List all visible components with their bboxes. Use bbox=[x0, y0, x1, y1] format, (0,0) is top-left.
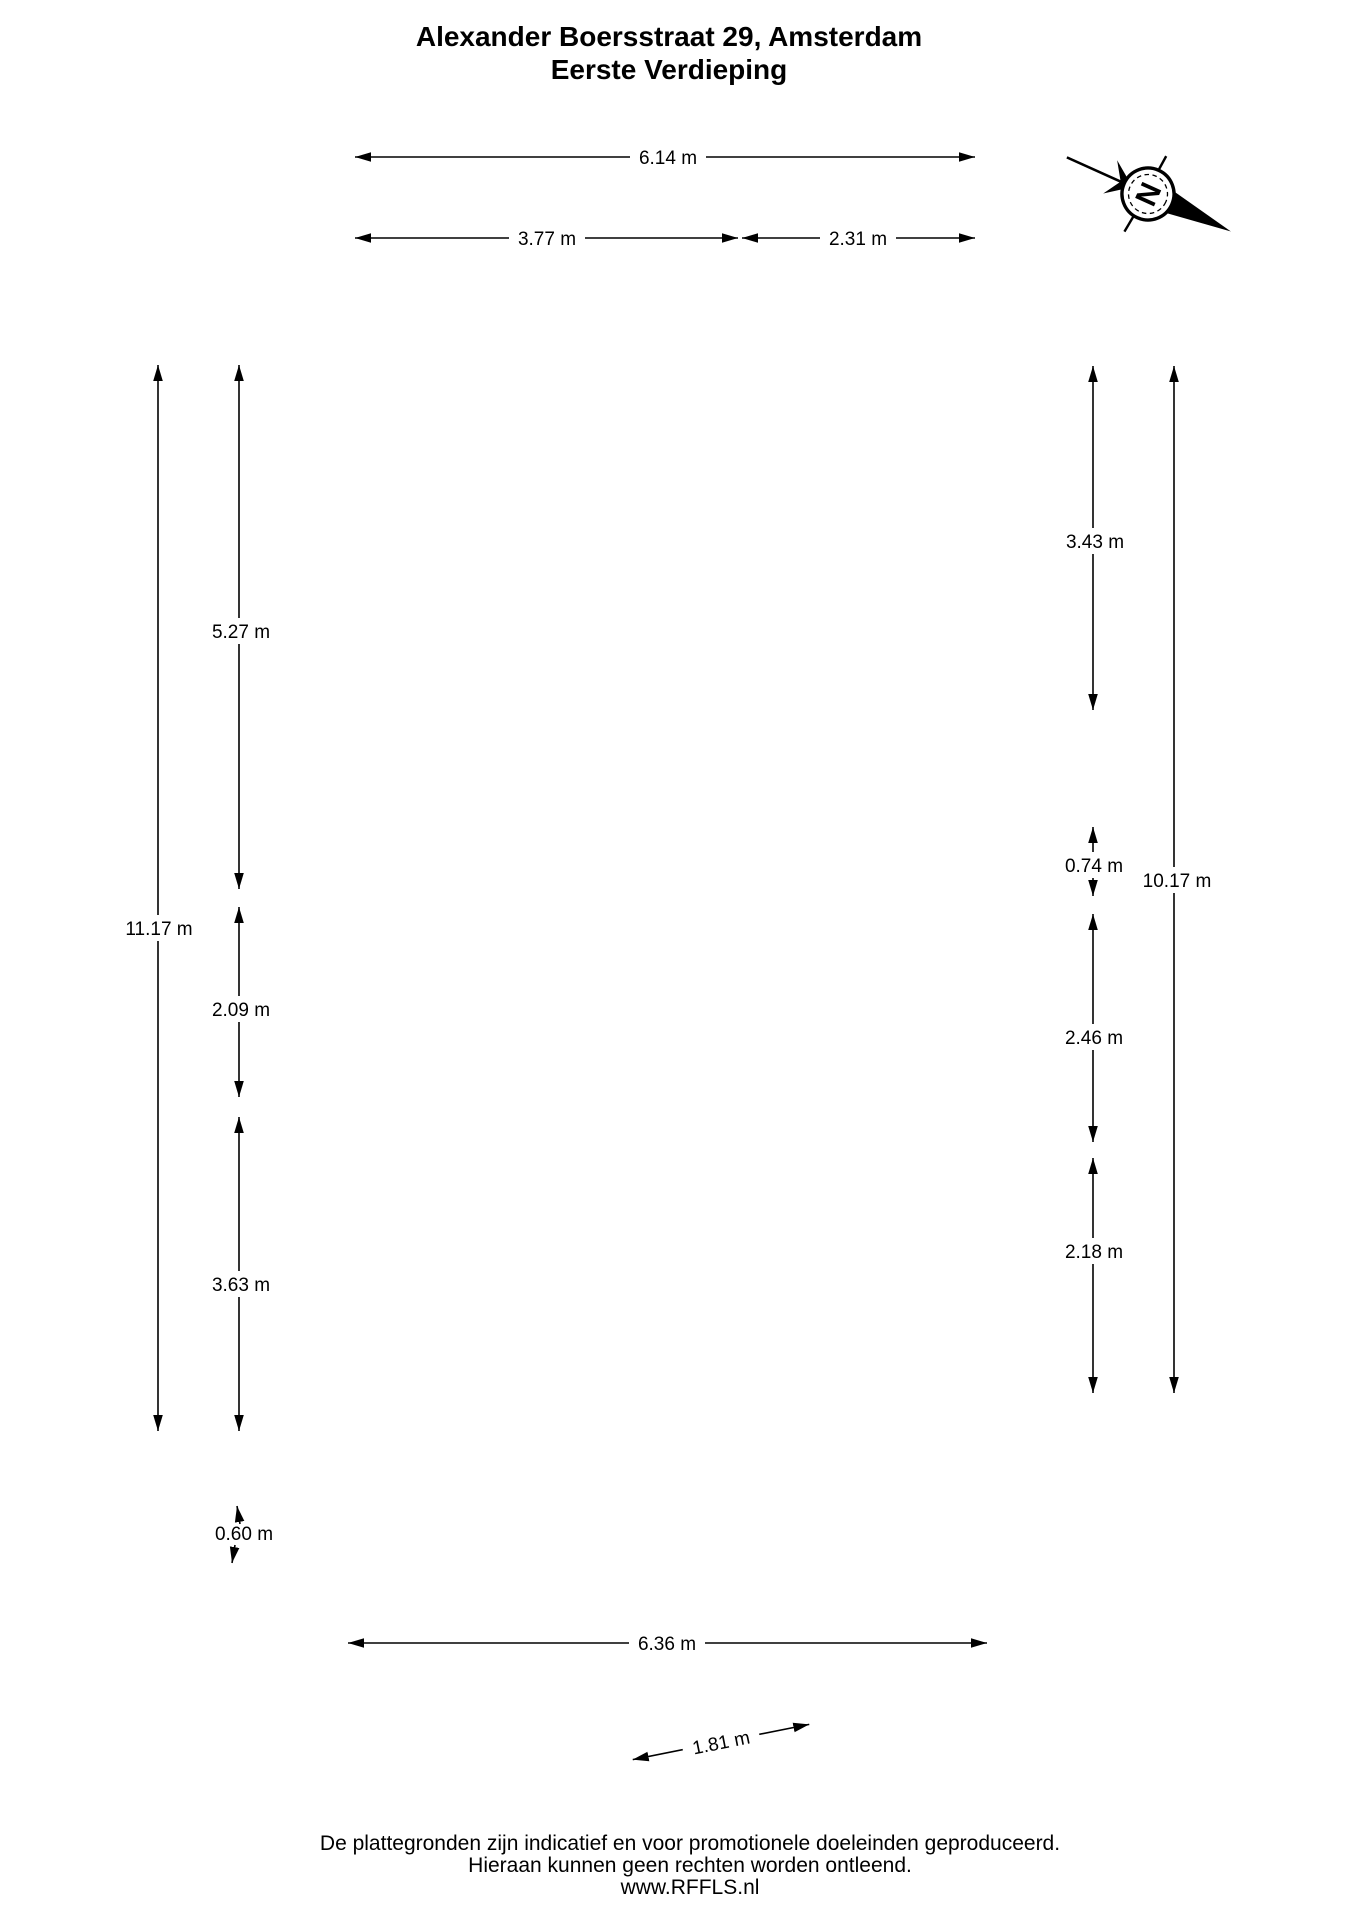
svg-text:5.27 m: 5.27 m bbox=[212, 622, 270, 643]
svg-text:2.18 m: 2.18 m bbox=[1065, 1242, 1123, 1263]
svg-text:www.RFFLS.nl: www.RFFLS.nl bbox=[620, 1876, 760, 1899]
svg-text:0.74 m: 0.74 m bbox=[1065, 856, 1123, 877]
svg-text:Hieraan kunnen geen rechten wo: Hieraan kunnen geen rechten worden ontle… bbox=[468, 1854, 912, 1877]
svg-text:2.31 m: 2.31 m bbox=[829, 229, 887, 250]
svg-text:Eerste Verdieping: Eerste Verdieping bbox=[551, 54, 788, 85]
svg-text:3.43 m: 3.43 m bbox=[1066, 532, 1124, 553]
svg-text:Alexander Boersstraat 29, Amst: Alexander Boersstraat 29, Amsterdam bbox=[416, 21, 922, 52]
svg-text:2.46 m: 2.46 m bbox=[1065, 1028, 1123, 1049]
svg-text:3.77 m: 3.77 m bbox=[518, 229, 576, 250]
svg-text:0.60 m: 0.60 m bbox=[215, 1524, 273, 1545]
svg-text:6.14 m: 6.14 m bbox=[639, 148, 697, 169]
svg-text:3.63 m: 3.63 m bbox=[212, 1275, 270, 1296]
svg-text:De plattegronden zijn indicati: De plattegronden zijn indicatief en voor… bbox=[320, 1832, 1060, 1855]
svg-text:6.36 m: 6.36 m bbox=[638, 1634, 696, 1655]
svg-text:11.17 m: 11.17 m bbox=[125, 919, 192, 940]
svg-text:2.09 m: 2.09 m bbox=[212, 1000, 270, 1021]
svg-text:10.17 m: 10.17 m bbox=[1143, 871, 1212, 892]
